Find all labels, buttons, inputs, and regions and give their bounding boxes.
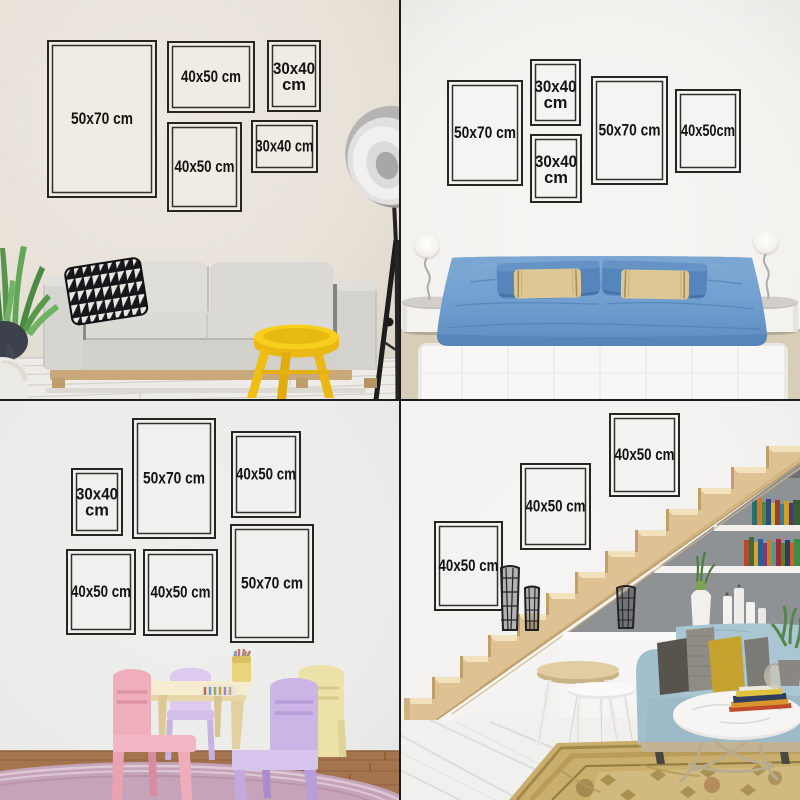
svg-text:cm: cm — [85, 502, 109, 520]
svg-text:cm: cm — [282, 76, 306, 94]
svg-text:50x70 cm: 50x70 cm — [143, 470, 205, 488]
svg-text:50x70 cm: 50x70 cm — [71, 110, 133, 128]
svg-text:40x50 cm: 40x50 cm — [439, 557, 499, 575]
svg-text:50x70 cm: 50x70 cm — [599, 122, 661, 140]
svg-text:40x50 cm: 40x50 cm — [151, 584, 211, 602]
svg-text:40x50cm: 40x50cm — [681, 122, 735, 140]
svg-text:50x70 cm: 50x70 cm — [241, 575, 303, 593]
svg-text:40x50 cm: 40x50 cm — [615, 446, 675, 464]
svg-text:cm: cm — [544, 94, 568, 112]
svg-text:30x40 cm: 30x40 cm — [256, 138, 314, 156]
svg-text:40x50 cm: 40x50 cm — [181, 68, 241, 86]
svg-text:40x50 cm: 40x50 cm — [175, 158, 235, 176]
svg-text:40x50 cm: 40x50 cm — [526, 498, 586, 516]
svg-text:40x50 cm: 40x50 cm — [71, 583, 131, 601]
svg-text:cm: cm — [544, 169, 568, 187]
svg-text:50x70 cm: 50x70 cm — [454, 124, 516, 142]
svg-text:40x50 cm: 40x50 cm — [236, 466, 296, 484]
